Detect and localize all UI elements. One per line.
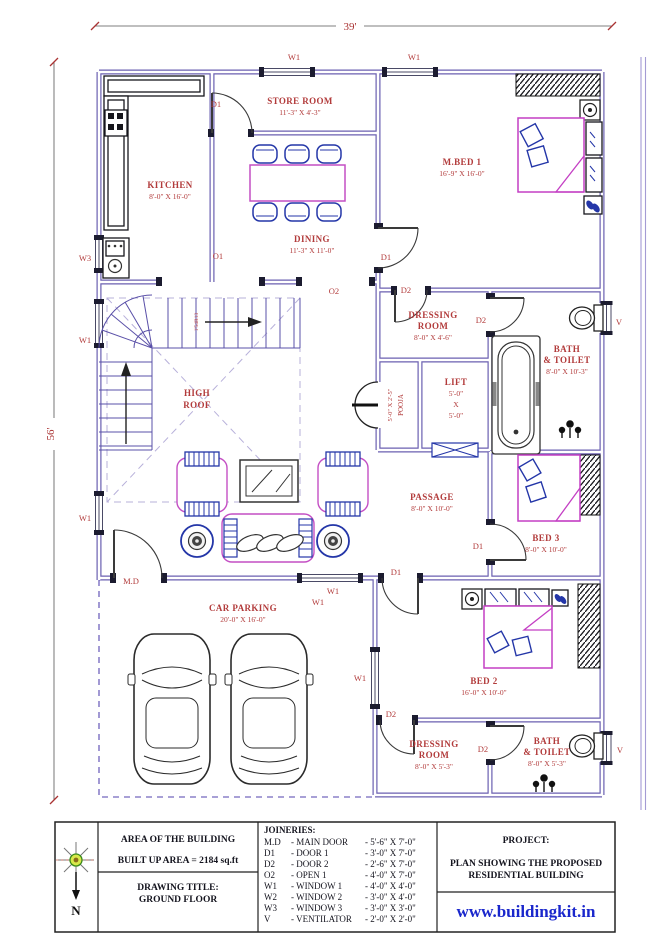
window-w1-top-left-icon <box>259 67 315 77</box>
room-label-bath1-2: & TOILET <box>543 355 590 365</box>
bed-icon <box>484 606 552 668</box>
door-d2-bath2-icon <box>490 726 524 760</box>
sofa-icon <box>222 514 314 562</box>
label-v: V <box>616 317 623 327</box>
shower-icon <box>559 420 581 438</box>
door-d1-bed3-icon <box>490 524 526 560</box>
room-label-highroof: HIGH <box>184 388 210 398</box>
side-table-icon <box>181 525 213 557</box>
bed-icon <box>518 118 584 192</box>
joinery-name: - DOOR 1 <box>291 848 329 858</box>
room-label-carparking: CAR PARKING <box>209 603 277 613</box>
pooja-niche-icon <box>352 382 378 428</box>
label-d2: D2 <box>476 315 486 325</box>
room-label-passage: PASSAGE <box>410 492 454 502</box>
label-md: M.D <box>123 576 139 586</box>
room-label-dressing1-2: ROOM <box>418 321 449 331</box>
room-size-bed3: 8'-0" X 10'-0" <box>525 545 567 554</box>
room-label-highroof-2: ROOF <box>183 400 211 410</box>
floor-plan-sheet: 39' 56' <box>0 0 669 945</box>
room-size-passage: 8'-0" X 10'-0" <box>411 504 453 513</box>
project-line2: RESIDENTIAL BUILDING <box>468 871 584 881</box>
lift-dim1: 5'-0" <box>449 389 463 398</box>
room-label-lift: LIFT <box>445 377 468 387</box>
shower-icon <box>533 774 555 792</box>
label-d1: D1 <box>381 252 391 262</box>
room-size-store: 11'-3" X 4'-3" <box>279 108 320 117</box>
label-o2: O2 <box>329 286 339 296</box>
room-label-mbed1: M.BED 1 <box>443 157 482 167</box>
wardrobe-icon <box>580 455 600 515</box>
label-v: V <box>617 745 624 755</box>
joinery-size: - 2'-6" X 7'-0" <box>365 859 416 869</box>
joinery-name: - DOOR 2 <box>291 859 329 869</box>
label-d1: D1 <box>211 99 221 109</box>
room-size-dining: 11'-3" X 11'-0" <box>290 246 335 255</box>
joinery-size: - 2'-0" X 2'-0" <box>365 914 416 924</box>
room-size-mbed1: 16'-9" X 16'-0" <box>439 169 485 178</box>
joinery-name: - WINDOW 2 <box>291 892 342 902</box>
built-up-area: BUILT UP AREA = 2184 sq.ft <box>118 856 239 866</box>
toilet-icon <box>570 733 604 759</box>
label-w1: W1 <box>79 335 91 345</box>
side-table-icon <box>317 525 349 557</box>
dining-table-icon <box>250 145 345 221</box>
label-w1: W1 <box>408 52 420 62</box>
project-label: PROJECT: <box>503 836 550 846</box>
room-size-dressing1: 8'-0" X 4'-6" <box>414 333 452 342</box>
room-label-pooja: POOJA <box>397 394 405 416</box>
wardrobe-icon <box>516 74 600 96</box>
room-label-bath2-2: & TOILET <box>523 747 570 757</box>
room-size-carparking: 20'-0" X 16'-0" <box>220 615 266 624</box>
lift-dim2: X <box>453 400 459 409</box>
door-d2-bath1-icon <box>490 298 524 332</box>
sink-icon <box>103 238 129 278</box>
room-label-bed3: BED 3 <box>532 533 559 543</box>
label-d2: D2 <box>401 285 411 295</box>
title-block: N AREA OF THE BUILDING BUILT UP AREA = 2… <box>55 822 615 932</box>
room-label-dressing1: DRESSING <box>408 310 457 320</box>
room-size-bed2: 16'-0" X 10'-0" <box>461 688 507 697</box>
joinery-name: - VENTILATOR <box>291 914 352 924</box>
label-d2: D2 <box>478 744 488 754</box>
door-md-main-icon <box>114 530 162 578</box>
window-w1-living-icon <box>297 573 363 583</box>
window-w1-parking-icon <box>370 647 380 709</box>
room-label-store: STORE ROOM <box>267 96 333 106</box>
label-w1: W1 <box>312 597 324 607</box>
bed2-furniture <box>462 584 600 668</box>
armchair-icon <box>177 452 227 516</box>
room-label-dressing2-2: ROOM <box>419 750 450 760</box>
joinery-code: W3 <box>264 903 277 913</box>
stove-icon <box>105 110 127 136</box>
living-furniture <box>177 452 368 562</box>
lift-door-icon <box>432 443 478 457</box>
fan-icon <box>462 589 482 609</box>
joinery-code: D2 <box>264 859 275 869</box>
armchair-icon <box>318 452 368 516</box>
label-w1: W1 <box>288 52 300 62</box>
joinery-size: - 3'-0" X 4'-0" <box>365 892 416 902</box>
drawing-title-label: DRAWING TITLE: <box>137 883 218 893</box>
room-label-bed2: BED 2 <box>470 676 497 686</box>
room-label-bath2: BATH <box>534 736 560 746</box>
bed3-furniture <box>518 455 600 521</box>
room-label-dressing2: DRESSING <box>409 739 458 749</box>
toilet-icon <box>570 305 604 331</box>
label-w1: W1 <box>79 513 91 523</box>
car-icon <box>128 634 216 784</box>
project-line1: PLAN SHOWING THE PROPOSED <box>450 859 602 869</box>
room-size-kitchen: 8'-0" X 16'-0" <box>149 192 191 201</box>
door-d1-bed2-icon <box>382 578 418 614</box>
floor-plan-drawing: 39' 56' <box>0 0 669 945</box>
room-size-bath1: 8'-0" X 10'-3" <box>546 367 588 376</box>
label-d1: D1 <box>473 541 483 551</box>
room-size-pooja: 5'-0" X 2'-5" <box>387 388 394 421</box>
window-w1-top-right-icon <box>382 67 438 77</box>
joinery-size: - 4'-0" X 7'-0" <box>365 870 416 880</box>
dim-height: 56' <box>45 427 57 440</box>
wardrobe-icon <box>578 584 600 668</box>
bath1-fittings <box>492 305 603 454</box>
joinery-name: - OPEN 1 <box>291 870 327 880</box>
dim-width: 39' <box>344 21 357 33</box>
room-label-dining: DINING <box>294 234 330 244</box>
joinery-name: - MAIN DOOR <box>291 837 348 847</box>
slippers-icon <box>584 196 602 214</box>
label-w1: W1 <box>354 673 366 683</box>
stair-note: 1'54R13 <box>194 313 200 332</box>
joinery-name: - WINDOW 3 <box>291 903 343 913</box>
joineries-heading: JOINERIES: <box>264 825 316 835</box>
side-table-icon <box>586 122 602 155</box>
label-d2: D2 <box>386 709 396 719</box>
joinery-code: M.D <box>264 837 281 847</box>
car-icon <box>225 634 313 784</box>
compound-wall <box>641 57 646 810</box>
label-o1: O1 <box>213 251 223 261</box>
room-label-kitchen: KITCHEN <box>147 180 192 190</box>
joinery-size: - 3'-0" X 7'-0" <box>365 848 416 858</box>
lift-dim3: 5'-0" <box>449 411 463 420</box>
car-parking-icons <box>128 634 313 784</box>
side-table-icon <box>586 158 602 192</box>
label-w1: W1 <box>327 586 339 596</box>
slippers-icon <box>552 590 568 606</box>
joinery-name: - WINDOW 1 <box>291 881 342 891</box>
kitchen-counter-icon <box>104 76 204 230</box>
area-heading: AREA OF THE BUILDING <box>121 835 236 845</box>
bathtub-icon <box>492 336 540 454</box>
room-label-bath1: BATH <box>554 344 580 354</box>
joinery-code: O2 <box>264 870 275 880</box>
label-w3: W3 <box>79 253 91 263</box>
bed-icon <box>518 455 580 521</box>
north-label: N <box>71 903 81 918</box>
drawing-title: GROUND FLOOR <box>139 895 218 905</box>
room-size-dressing2: 8'-0" X 5'-3" <box>415 762 453 771</box>
tv-icon <box>240 460 298 502</box>
joinery-code: W1 <box>264 881 277 891</box>
joinery-code: D1 <box>264 848 275 858</box>
fan-icon <box>580 100 600 120</box>
window-w1-living-left-icon <box>94 491 104 535</box>
door-d1-mbed1-icon <box>378 228 418 268</box>
joinery-size: - 3'-0" X 3'-0" <box>365 903 416 913</box>
room-size-bath2: 8'-0" X 5'-3" <box>528 759 566 768</box>
joinery-size: - 4'-0" X 4'-0" <box>365 881 416 891</box>
joinery-code: V <box>264 914 271 924</box>
joinery-size: - 5'-6" X 7'-0" <box>365 837 416 847</box>
label-d1: D1 <box>391 567 401 577</box>
mbed1-furniture <box>516 74 602 214</box>
website-link[interactable]: www.buildingkit.in <box>457 902 596 921</box>
joinery-code: W2 <box>264 892 277 902</box>
